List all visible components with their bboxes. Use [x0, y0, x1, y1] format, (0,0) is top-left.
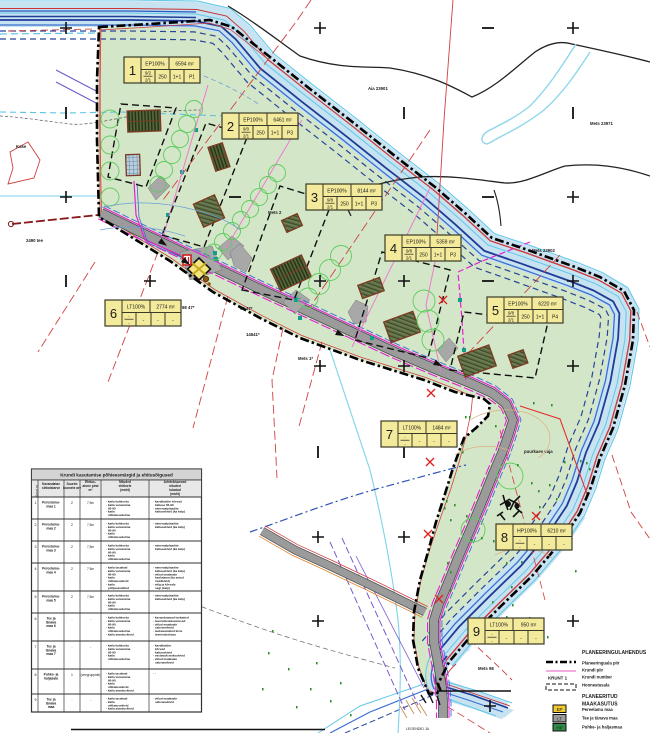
svg-text:2/1: 2/1	[406, 255, 413, 260]
svg-text:HP100%: HP100%	[517, 529, 537, 535]
svg-text:250: 250	[419, 253, 428, 259]
svg-text:maa 3: maa 3	[46, 548, 56, 552]
svg-text:Planeeringuala piir: Planeeringuala piir	[582, 661, 620, 666]
svg-text:6210 m²: 6210 m²	[547, 529, 566, 535]
svg-text:6: 6	[35, 617, 37, 621]
svg-text:5: 5	[35, 595, 37, 599]
svg-text:9/8: 9/8	[406, 249, 413, 254]
svg-text:1: 1	[71, 673, 73, 677]
svg-text:EP100%: EP100%	[327, 189, 347, 195]
svg-text:maa 4: maa 4	[46, 570, 56, 574]
svg-text:2/1: 2/1	[145, 77, 152, 82]
svg-text:Mets 23902: Mets 23902	[532, 248, 556, 253]
svg-text:1+1: 1+1	[355, 202, 364, 208]
svg-text:P3: P3	[287, 131, 293, 137]
svg-text:950 m²: 950 m²	[521, 623, 537, 629]
svg-text:Krundi kasutamise põhieesmärgi: Krundi kasutamise põhieesmärgid ja ehitu…	[60, 473, 173, 478]
svg-text:Aia 23901: Aia 23901	[368, 86, 388, 91]
svg-text:- -: - -	[153, 672, 156, 676]
svg-text:9: 9	[473, 624, 480, 639]
svg-text:KRUNT 1: KRUNT 1	[548, 676, 568, 681]
svg-text:7: 7	[386, 427, 393, 442]
svg-text:Tee ja tänava maa: Tee ja tänava maa	[582, 716, 618, 721]
svg-text:Krundi piir: Krundi piir	[582, 668, 604, 673]
svg-text:LT100%: LT100%	[127, 305, 146, 311]
svg-text:6220 m²: 6220 m²	[538, 302, 557, 308]
svg-text:Mets 23971: Mets 23971	[590, 121, 614, 126]
svg-text:kaltasekivid (ka kelp): kaltasekivid (ka kelp)	[155, 510, 185, 514]
svg-text:9/8: 9/8	[508, 311, 515, 316]
svg-text:2: 2	[227, 119, 234, 134]
svg-text:- katla aianduskivid: - katla aianduskivid	[106, 633, 134, 637]
svg-text:-: -	[71, 645, 72, 649]
svg-text:7,5m: 7,5m	[87, 545, 94, 549]
svg-text:250: 250	[158, 75, 167, 81]
svg-text:1: 1	[129, 63, 136, 78]
svg-text:9: 9	[35, 698, 37, 702]
svg-text:3: 3	[311, 190, 318, 205]
svg-text:maa 1: maa 1	[46, 504, 56, 508]
svg-text:250: 250	[521, 315, 530, 321]
svg-text:m²: m²	[89, 488, 93, 492]
svg-text:4: 4	[390, 241, 397, 256]
svg-text:- katla aianduskivid: - katla aianduskivid	[106, 689, 134, 693]
svg-text:1+1: 1+1	[536, 315, 545, 321]
svg-text:2/1: 2/1	[327, 204, 334, 209]
svg-text:2: 2	[71, 567, 73, 571]
svg-text:2774 m²: 2774 m²	[156, 305, 175, 311]
svg-text:2: 2	[71, 501, 73, 505]
svg-text:2: 2	[71, 523, 73, 527]
svg-text:7,5m: 7,5m	[87, 501, 94, 505]
svg-text:Mets 2: Mets 2	[268, 210, 282, 215]
svg-text:6461 m²: 6461 m²	[273, 118, 292, 124]
svg-text:sabvanekivid: sabvanekivid	[155, 661, 174, 665]
svg-text:9/0: 9/0	[243, 127, 250, 132]
svg-text:7,5m: 7,5m	[87, 595, 94, 599]
svg-text:LT100%: LT100%	[490, 623, 509, 629]
svg-text:P1: P1	[189, 75, 195, 81]
svg-text:PLANEERITUD: PLANEERITUD	[582, 694, 618, 700]
svg-text:7,5m: 7,5m	[87, 523, 94, 527]
svg-text:maa: maa	[48, 705, 55, 709]
svg-text:8: 8	[501, 530, 508, 545]
svg-text:HP: HP	[556, 725, 562, 730]
svg-text:98 47*: 98 47*	[182, 305, 195, 310]
svg-text:8144 m²: 8144 m²	[357, 189, 376, 195]
svg-text:Krunt nr: Krunt nr	[35, 484, 39, 497]
svg-text:viilkatusekelme: viilkatusekelme	[108, 535, 131, 539]
svg-text:maa 2: maa 2	[46, 526, 56, 530]
svg-text:9/2: 9/2	[145, 71, 152, 76]
svg-text:viilkatusekelme: viilkatusekelme	[108, 557, 131, 561]
svg-text:viilkatusekelme: viilkatusekelme	[108, 607, 131, 611]
svg-text:EP: EP	[557, 707, 563, 712]
svg-text:Krundi number: Krundi number	[582, 675, 612, 680]
svg-text:kaltasekivid (ka kelp): kaltasekivid (ka kelp)	[155, 547, 185, 551]
svg-text:-: -	[71, 698, 72, 702]
svg-text:5359 m²: 5359 m²	[436, 240, 455, 246]
svg-text:2: 2	[71, 545, 73, 549]
svg-text:1+1: 1+1	[434, 253, 443, 259]
svg-text:EP100%: EP100%	[508, 302, 528, 308]
svg-text:(veegruppide): (veegruppide)	[81, 673, 101, 677]
svg-text:viilkatusekelme: viilkatusekelme	[108, 657, 131, 661]
svg-text:2: 2	[35, 523, 37, 527]
svg-text:sagt (kelp): sagt (kelp)	[155, 586, 170, 590]
svg-text:maa 7: maa 7	[46, 652, 56, 656]
svg-text:EP100%: EP100%	[243, 118, 263, 124]
svg-text:9/8: 9/8	[327, 198, 334, 203]
svg-text:2/1: 2/1	[243, 133, 250, 138]
svg-text:4: 4	[35, 567, 37, 571]
svg-text:7,5m: 7,5m	[87, 567, 94, 571]
svg-text:-: -	[90, 617, 91, 621]
svg-text:kaltasekivid (ka kelp): kaltasekivid (ka kelp)	[155, 525, 185, 529]
svg-text:Mets 1*: Mets 1*	[298, 356, 313, 361]
svg-text:8: 8	[35, 673, 37, 677]
svg-text:2490 tee: 2490 tee	[26, 238, 44, 243]
svg-text:- katla aianduskivid: - katla aianduskivid	[106, 707, 134, 711]
svg-text:-: -	[90, 698, 91, 702]
svg-text:LT: LT	[557, 716, 562, 721]
svg-text:(maht): (maht)	[170, 492, 180, 496]
svg-text:14641*: 14641*	[246, 332, 260, 337]
svg-text:hoonete arv: hoonete arv	[63, 486, 81, 490]
svg-text:7: 7	[35, 645, 37, 649]
svg-text:Hoonestusala: Hoonestusala	[582, 683, 610, 688]
svg-text:6: 6	[110, 306, 117, 321]
svg-text:LT100%: LT100%	[403, 426, 422, 432]
svg-text:P3: P3	[450, 253, 456, 259]
svg-text:sabvanekivid: sabvanekivid	[155, 700, 174, 704]
svg-text:teeninduskava: teeninduskava	[155, 633, 176, 637]
svg-text:2/1: 2/1	[508, 317, 515, 322]
svg-text:haljasala: haljasala	[44, 676, 58, 680]
svg-text:1+1: 1+1	[271, 131, 280, 137]
svg-text:P3: P3	[371, 202, 377, 208]
svg-text:-: -	[71, 617, 72, 621]
svg-text:Puhke- ja haljasmaa: Puhke- ja haljasmaa	[582, 725, 623, 730]
svg-text:5: 5	[492, 303, 499, 318]
svg-text:(maht): (maht)	[120, 488, 130, 492]
svg-text:1+1: 1+1	[173, 75, 182, 81]
svg-text:2: 2	[71, 595, 73, 599]
svg-text:EP100%: EP100%	[145, 62, 165, 68]
svg-text:sihtotstarve: sihtotstarve	[42, 486, 60, 490]
svg-text:Pereelamu maa: Pereelamu maa	[582, 707, 613, 712]
svg-text:kaltasekivid (ka kelp): kaltasekivid (ka kelp)	[155, 597, 185, 601]
svg-text:Kase: Kase	[16, 144, 27, 149]
svg-text:98 47*: 98 47*	[240, 306, 253, 311]
svg-text:6594 m²: 6594 m²	[175, 62, 194, 68]
svg-text:maa 6: maa 6	[46, 624, 56, 628]
svg-text:1484 m²: 1484 m²	[432, 426, 451, 432]
svg-text:1: 1	[35, 501, 37, 505]
svg-text:P4: P4	[552, 315, 558, 321]
svg-text:viilkatusekelme: viilkatusekelme	[108, 513, 131, 517]
svg-text:LEGENDID JA: LEGENDID JA	[406, 727, 430, 731]
svg-text:põhjasavalitud: põhjasavalitud	[108, 586, 129, 590]
svg-text:-: -	[90, 645, 91, 649]
svg-text:puurkaev vaja: puurkaev vaja	[524, 449, 553, 454]
svg-text:Mets 98: Mets 98	[478, 666, 494, 671]
svg-text:250: 250	[256, 131, 265, 137]
svg-text:EP100%: EP100%	[406, 240, 426, 246]
svg-text:maa 5: maa 5	[46, 598, 56, 602]
svg-text:PLANEERINGULAHENDUS: PLANEERINGULAHENDUS	[582, 650, 647, 656]
svg-text:250: 250	[340, 202, 349, 208]
svg-text:3: 3	[35, 545, 37, 549]
